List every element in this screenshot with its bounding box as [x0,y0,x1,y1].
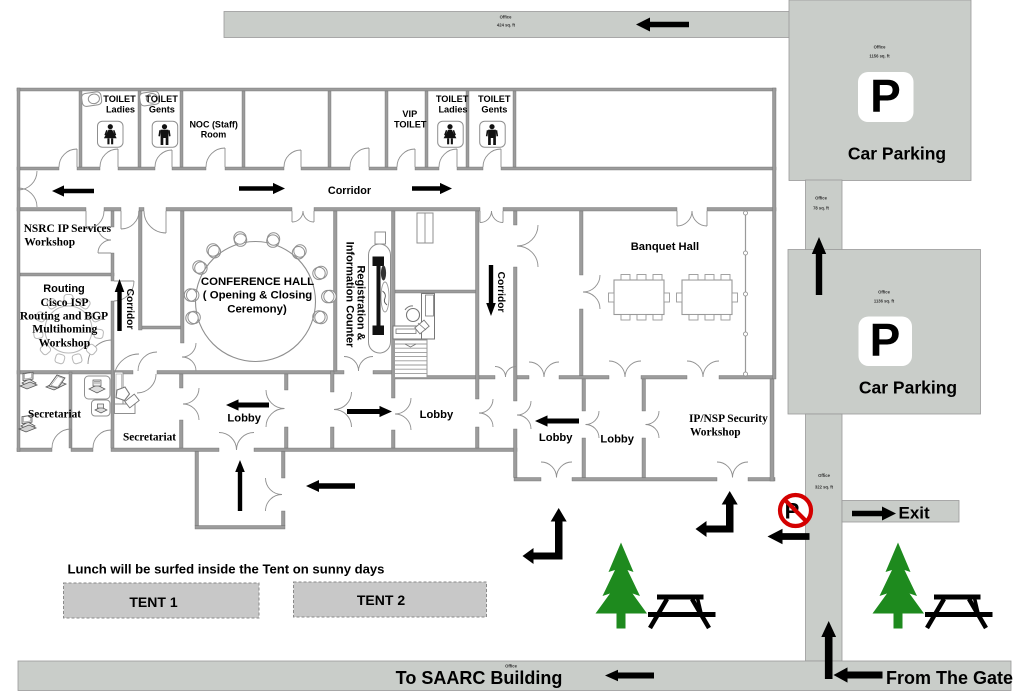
svg-text:From The Gate: From The Gate [886,668,1013,688]
svg-text:Corridor: Corridor [328,185,372,197]
svg-text:Office: Office [874,45,887,50]
svg-text:Lunch will be surfed inside th: Lunch will be surfed inside the Tent on … [68,562,385,577]
svg-text:Gents: Gents [481,105,507,115]
svg-text:Workshop: Workshop [39,336,91,349]
svg-text:Corridor: Corridor [124,289,135,330]
svg-text:Banquet Hall: Banquet Hall [631,241,699,253]
svg-text:Lobby: Lobby [539,432,573,444]
svg-text:Routing: Routing [43,283,85,295]
svg-text:TOILET: TOILET [478,94,511,104]
svg-text:NOC (Staff): NOC (Staff) [189,120,238,130]
svg-text:TENT 1: TENT 1 [129,594,177,610]
svg-text:TOILET: TOILET [436,94,469,104]
svg-text:VIP: VIP [402,109,417,119]
svg-text:Lobby: Lobby [420,409,454,421]
svg-text:424 sq. ft: 424 sq. ft [497,23,516,28]
svg-text:1136 sq. ft: 1136 sq. ft [874,299,895,304]
svg-text:Lobby: Lobby [600,433,634,445]
svg-text:Office: Office [500,15,513,20]
svg-text:( Opening & Closing: ( Opening & Closing [203,290,313,302]
svg-text:Workshop: Workshop [690,426,741,438]
svg-text:Cisco ISP: Cisco ISP [41,296,89,309]
svg-text:Office: Office [818,473,831,478]
svg-text:Secretariat: Secretariat [28,408,81,420]
svg-text:P: P [870,70,901,122]
svg-text:322 sq. ft: 322 sq. ft [815,485,834,490]
svg-text:Car Parking: Car Parking [859,378,957,398]
svg-text:Secretariat: Secretariat [123,432,176,444]
svg-text:1156 sq. ft: 1156 sq. ft [869,54,890,59]
svg-text:Routing and BGP: Routing and BGP [20,309,108,322]
svg-text:Corridor: Corridor [495,272,506,313]
svg-text:To SAARC Building: To SAARC Building [396,668,563,688]
svg-text:TOILET: TOILET [145,94,178,104]
svg-text:Room: Room [201,130,227,140]
svg-text:P: P [870,314,901,366]
svg-text:Multihoming: Multihoming [32,322,97,335]
svg-text:Workshop: Workshop [24,236,75,248]
svg-text:Ladies: Ladies [106,105,135,115]
svg-text:78 sq. ft: 78 sq. ft [813,206,829,211]
svg-text:Exit: Exit [899,504,931,523]
svg-text:NSRC IP Services: NSRC IP Services [24,223,112,235]
svg-text:Car Parking: Car Parking [848,144,946,164]
svg-text:Gents: Gents [149,105,175,115]
svg-text:TOILET: TOILET [394,119,427,129]
svg-text:TOILET: TOILET [103,94,136,104]
svg-text:Office: Office [815,196,828,201]
svg-text:Ladies: Ladies [438,105,467,115]
svg-text:Office: Office [878,290,891,295]
svg-text:Lobby: Lobby [227,412,261,424]
svg-text:Information Counter: Information Counter [344,242,356,348]
svg-text:CONFERENCE HALL: CONFERENCE HALL [201,276,314,288]
svg-text:Ceremony): Ceremony) [227,303,287,315]
svg-text:IP/NSP Security: IP/NSP Security [689,413,768,425]
svg-text:TENT 2: TENT 2 [357,592,405,608]
